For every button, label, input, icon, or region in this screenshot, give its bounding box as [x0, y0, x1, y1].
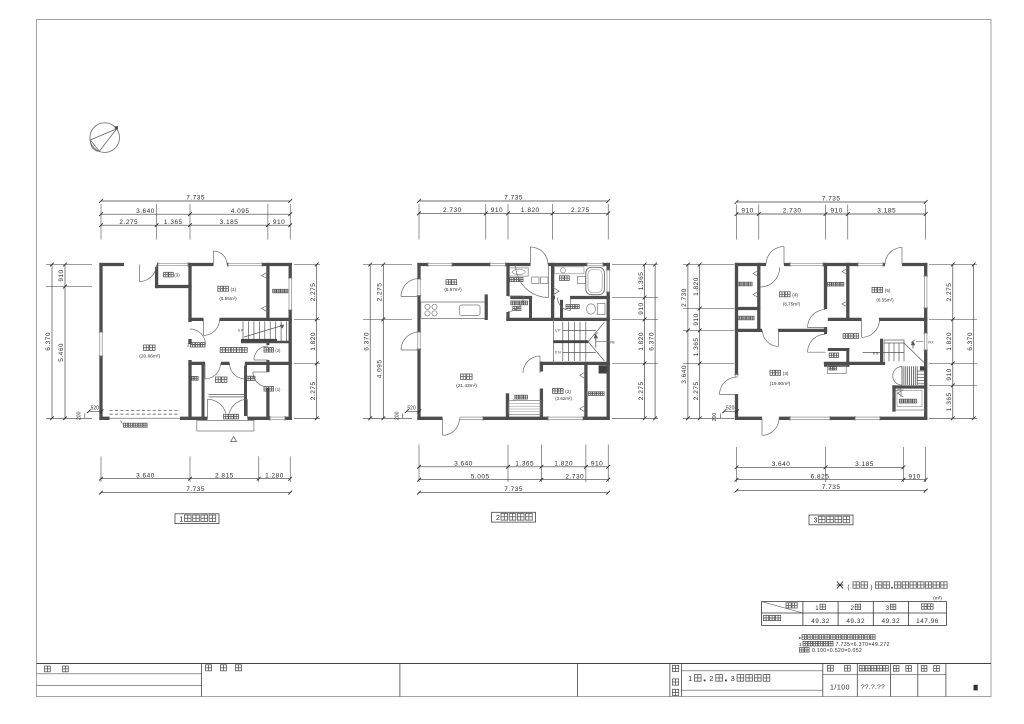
svg-text:6.370: 6.370 — [967, 332, 974, 351]
svg-text:FIX: FIX — [928, 340, 934, 344]
svg-text:(1): (1) — [231, 287, 237, 292]
svg-text:3.640: 3.640 — [454, 460, 473, 467]
svg-text:(21.43m²): (21.43m²) — [456, 383, 477, 389]
svg-text:3.185: 3.185 — [855, 461, 874, 468]
svg-text:2: 2 — [496, 515, 500, 522]
svg-text:1.365: 1.365 — [164, 219, 183, 226]
svg-text:4.095: 4.095 — [231, 208, 250, 215]
svg-text:1.820: 1.820 — [310, 332, 317, 351]
svg-text:2.730: 2.730 — [565, 473, 584, 480]
svg-text:3.185: 3.185 — [220, 219, 239, 226]
svg-text:7.735×6.370=49.272: 7.735×6.370=49.272 — [836, 642, 890, 648]
svg-text:520: 520 — [407, 406, 416, 412]
svg-text:910: 910 — [273, 219, 285, 226]
svg-text:): ) — [870, 584, 872, 591]
svg-text:(6.75m²): (6.75m²) — [783, 301, 801, 306]
svg-text:7.735: 7.735 — [822, 196, 841, 203]
svg-text:2.275: 2.275 — [946, 283, 953, 302]
svg-text:910: 910 — [693, 313, 700, 325]
svg-text:2.275: 2.275 — [119, 219, 138, 226]
svg-text:49.32: 49.32 — [846, 618, 865, 625]
svg-text:910: 910 — [638, 302, 645, 314]
svg-text:2.730: 2.730 — [783, 208, 802, 215]
svg-text:2.730: 2.730 — [681, 288, 688, 307]
svg-text:3: 3 — [731, 674, 735, 683]
svg-text:6.370: 6.370 — [648, 332, 655, 351]
svg-text:2.275: 2.275 — [638, 381, 645, 400]
svg-text:2.275: 2.275 — [310, 381, 317, 400]
svg-text:910: 910 — [908, 473, 920, 480]
svg-text:(3): (3) — [174, 273, 180, 278]
svg-text:520: 520 — [726, 406, 735, 412]
svg-text:1.820: 1.820 — [946, 332, 953, 351]
svg-text:910: 910 — [58, 269, 65, 281]
svg-text:910: 910 — [831, 208, 843, 215]
svg-text:1.820: 1.820 — [554, 460, 573, 467]
svg-text:1: 1 — [180, 516, 184, 523]
svg-text:2: 2 — [850, 605, 854, 612]
svg-text:200: 200 — [395, 411, 401, 420]
svg-text:3.640: 3.640 — [772, 461, 791, 468]
svg-text:1.365: 1.365 — [946, 392, 953, 411]
svg-text:910: 910 — [946, 368, 953, 380]
svg-text:??.?.??: ??.?.?? — [861, 684, 885, 691]
svg-text:910: 910 — [741, 208, 753, 215]
svg-text:(6.55m²): (6.55m²) — [219, 296, 237, 301]
svg-text:1: 1 — [799, 642, 802, 648]
svg-text:5.005: 5.005 — [471, 473, 490, 480]
svg-text:3.640: 3.640 — [136, 208, 155, 215]
svg-text:(m²): (m²) — [933, 595, 942, 601]
svg-text:2.275: 2.275 — [693, 381, 700, 400]
svg-text:(3.62m²): (3.62m²) — [555, 396, 572, 401]
svg-text:1.365: 1.365 — [693, 338, 700, 357]
svg-text:3.640: 3.640 — [136, 472, 155, 479]
svg-text:(4): (4) — [792, 292, 798, 297]
svg-text:1.365: 1.365 — [638, 272, 645, 291]
svg-text:4.095: 4.095 — [377, 360, 384, 379]
svg-text:(5.57m²): (5.57m²) — [444, 287, 462, 292]
svg-text:2: 2 — [709, 674, 713, 683]
svg-text:(3): (3) — [783, 371, 789, 376]
svg-text:5.460: 5.460 — [58, 343, 65, 362]
svg-text:2.275: 2.275 — [310, 283, 317, 302]
svg-text:1: 1 — [815, 605, 819, 612]
svg-text:D N: D N — [873, 352, 879, 356]
svg-text:200: 200 — [712, 413, 718, 422]
svg-text:1.280: 1.280 — [265, 472, 284, 479]
svg-text:1.820: 1.820 — [521, 207, 540, 214]
svg-text:U P: U P — [555, 328, 560, 332]
svg-text:(5): (5) — [885, 288, 891, 293]
svg-text:U P: U P — [238, 329, 243, 333]
svg-text:200: 200 — [77, 411, 83, 420]
svg-text:7.735: 7.735 — [186, 195, 205, 202]
svg-text:(19.90m²): (19.90m²) — [770, 381, 791, 387]
svg-text:1: 1 — [688, 674, 692, 683]
svg-text:(6.55m²): (6.55m²) — [876, 298, 894, 303]
svg-text:FB: FB — [610, 341, 615, 345]
svg-text:6.825: 6.825 — [811, 473, 830, 480]
svg-text:3.640: 3.640 — [681, 365, 688, 384]
svg-text:7.735: 7.735 — [822, 484, 841, 491]
svg-text:2.730: 2.730 — [443, 207, 462, 214]
svg-text:D N: D N — [555, 350, 561, 354]
svg-text:910: 910 — [591, 460, 603, 467]
svg-text:(2): (2) — [275, 348, 281, 353]
svg-text:147.96: 147.96 — [916, 618, 939, 625]
svg-text:7.735: 7.735 — [504, 195, 523, 202]
svg-text:7.735: 7.735 — [504, 486, 523, 493]
svg-text:520: 520 — [91, 406, 100, 412]
svg-text:1.820: 1.820 — [693, 277, 700, 296]
svg-text:2.275: 2.275 — [377, 283, 384, 302]
svg-text:6.370: 6.370 — [363, 332, 370, 351]
svg-text:3: 3 — [886, 605, 890, 612]
svg-text:49.32: 49.32 — [811, 618, 830, 625]
svg-text:(1): (1) — [275, 387, 281, 392]
svg-text:(2): (2) — [565, 389, 571, 394]
svg-text:7.735: 7.735 — [186, 486, 205, 493]
svg-text:1/100: 1/100 — [830, 685, 850, 692]
svg-text:0.100×0.520=0.052: 0.100×0.520=0.052 — [812, 648, 862, 654]
svg-text:49.32: 49.32 — [882, 618, 901, 625]
svg-text:6.370: 6.370 — [45, 332, 52, 351]
svg-text:(20.66m²): (20.66m²) — [139, 353, 160, 359]
svg-text:3.185: 3.185 — [877, 208, 896, 215]
svg-text:1.365: 1.365 — [515, 460, 534, 467]
svg-text:1.820: 1.820 — [638, 332, 645, 351]
svg-text:2.815: 2.815 — [215, 472, 234, 479]
svg-text:910: 910 — [491, 207, 503, 214]
svg-text:3: 3 — [814, 518, 818, 525]
svg-text:2.275: 2.275 — [571, 207, 590, 214]
